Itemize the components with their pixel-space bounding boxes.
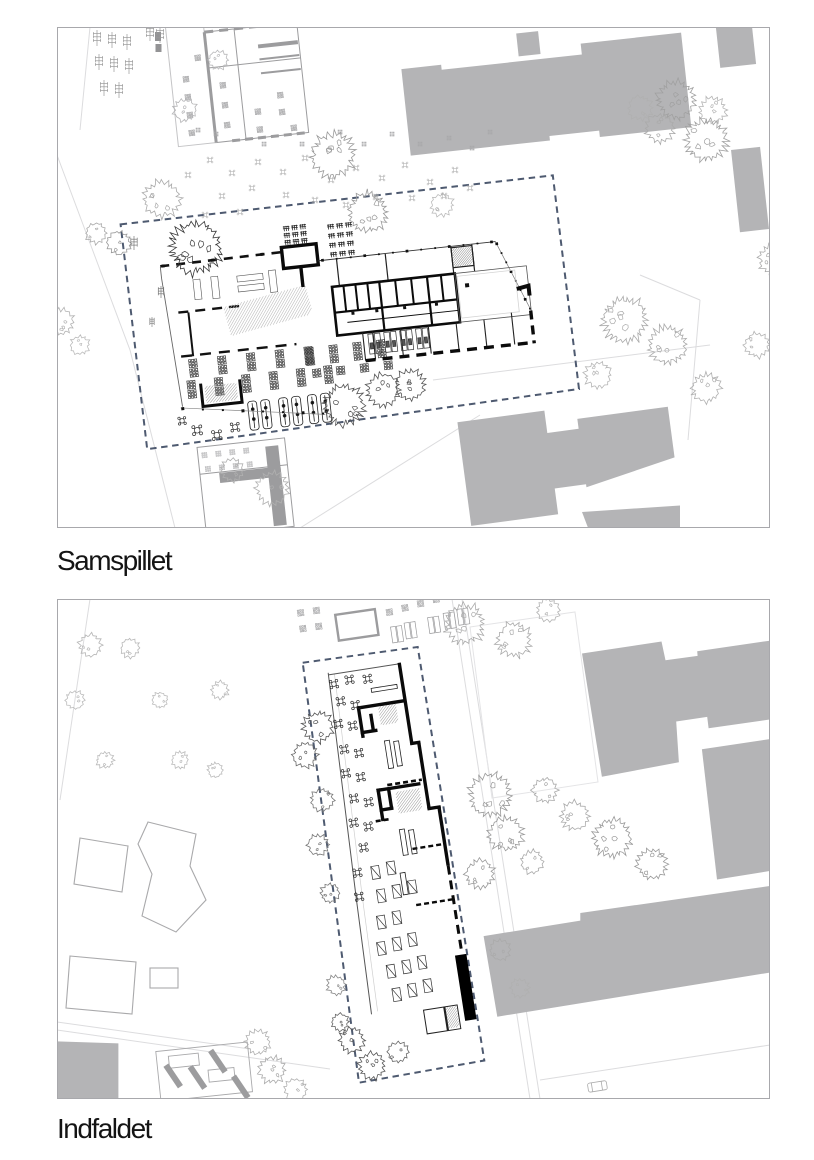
svg-text:Samspillet: Samspillet xyxy=(57,545,173,576)
svg-text:Indfaldet: Indfaldet xyxy=(57,1113,153,1144)
